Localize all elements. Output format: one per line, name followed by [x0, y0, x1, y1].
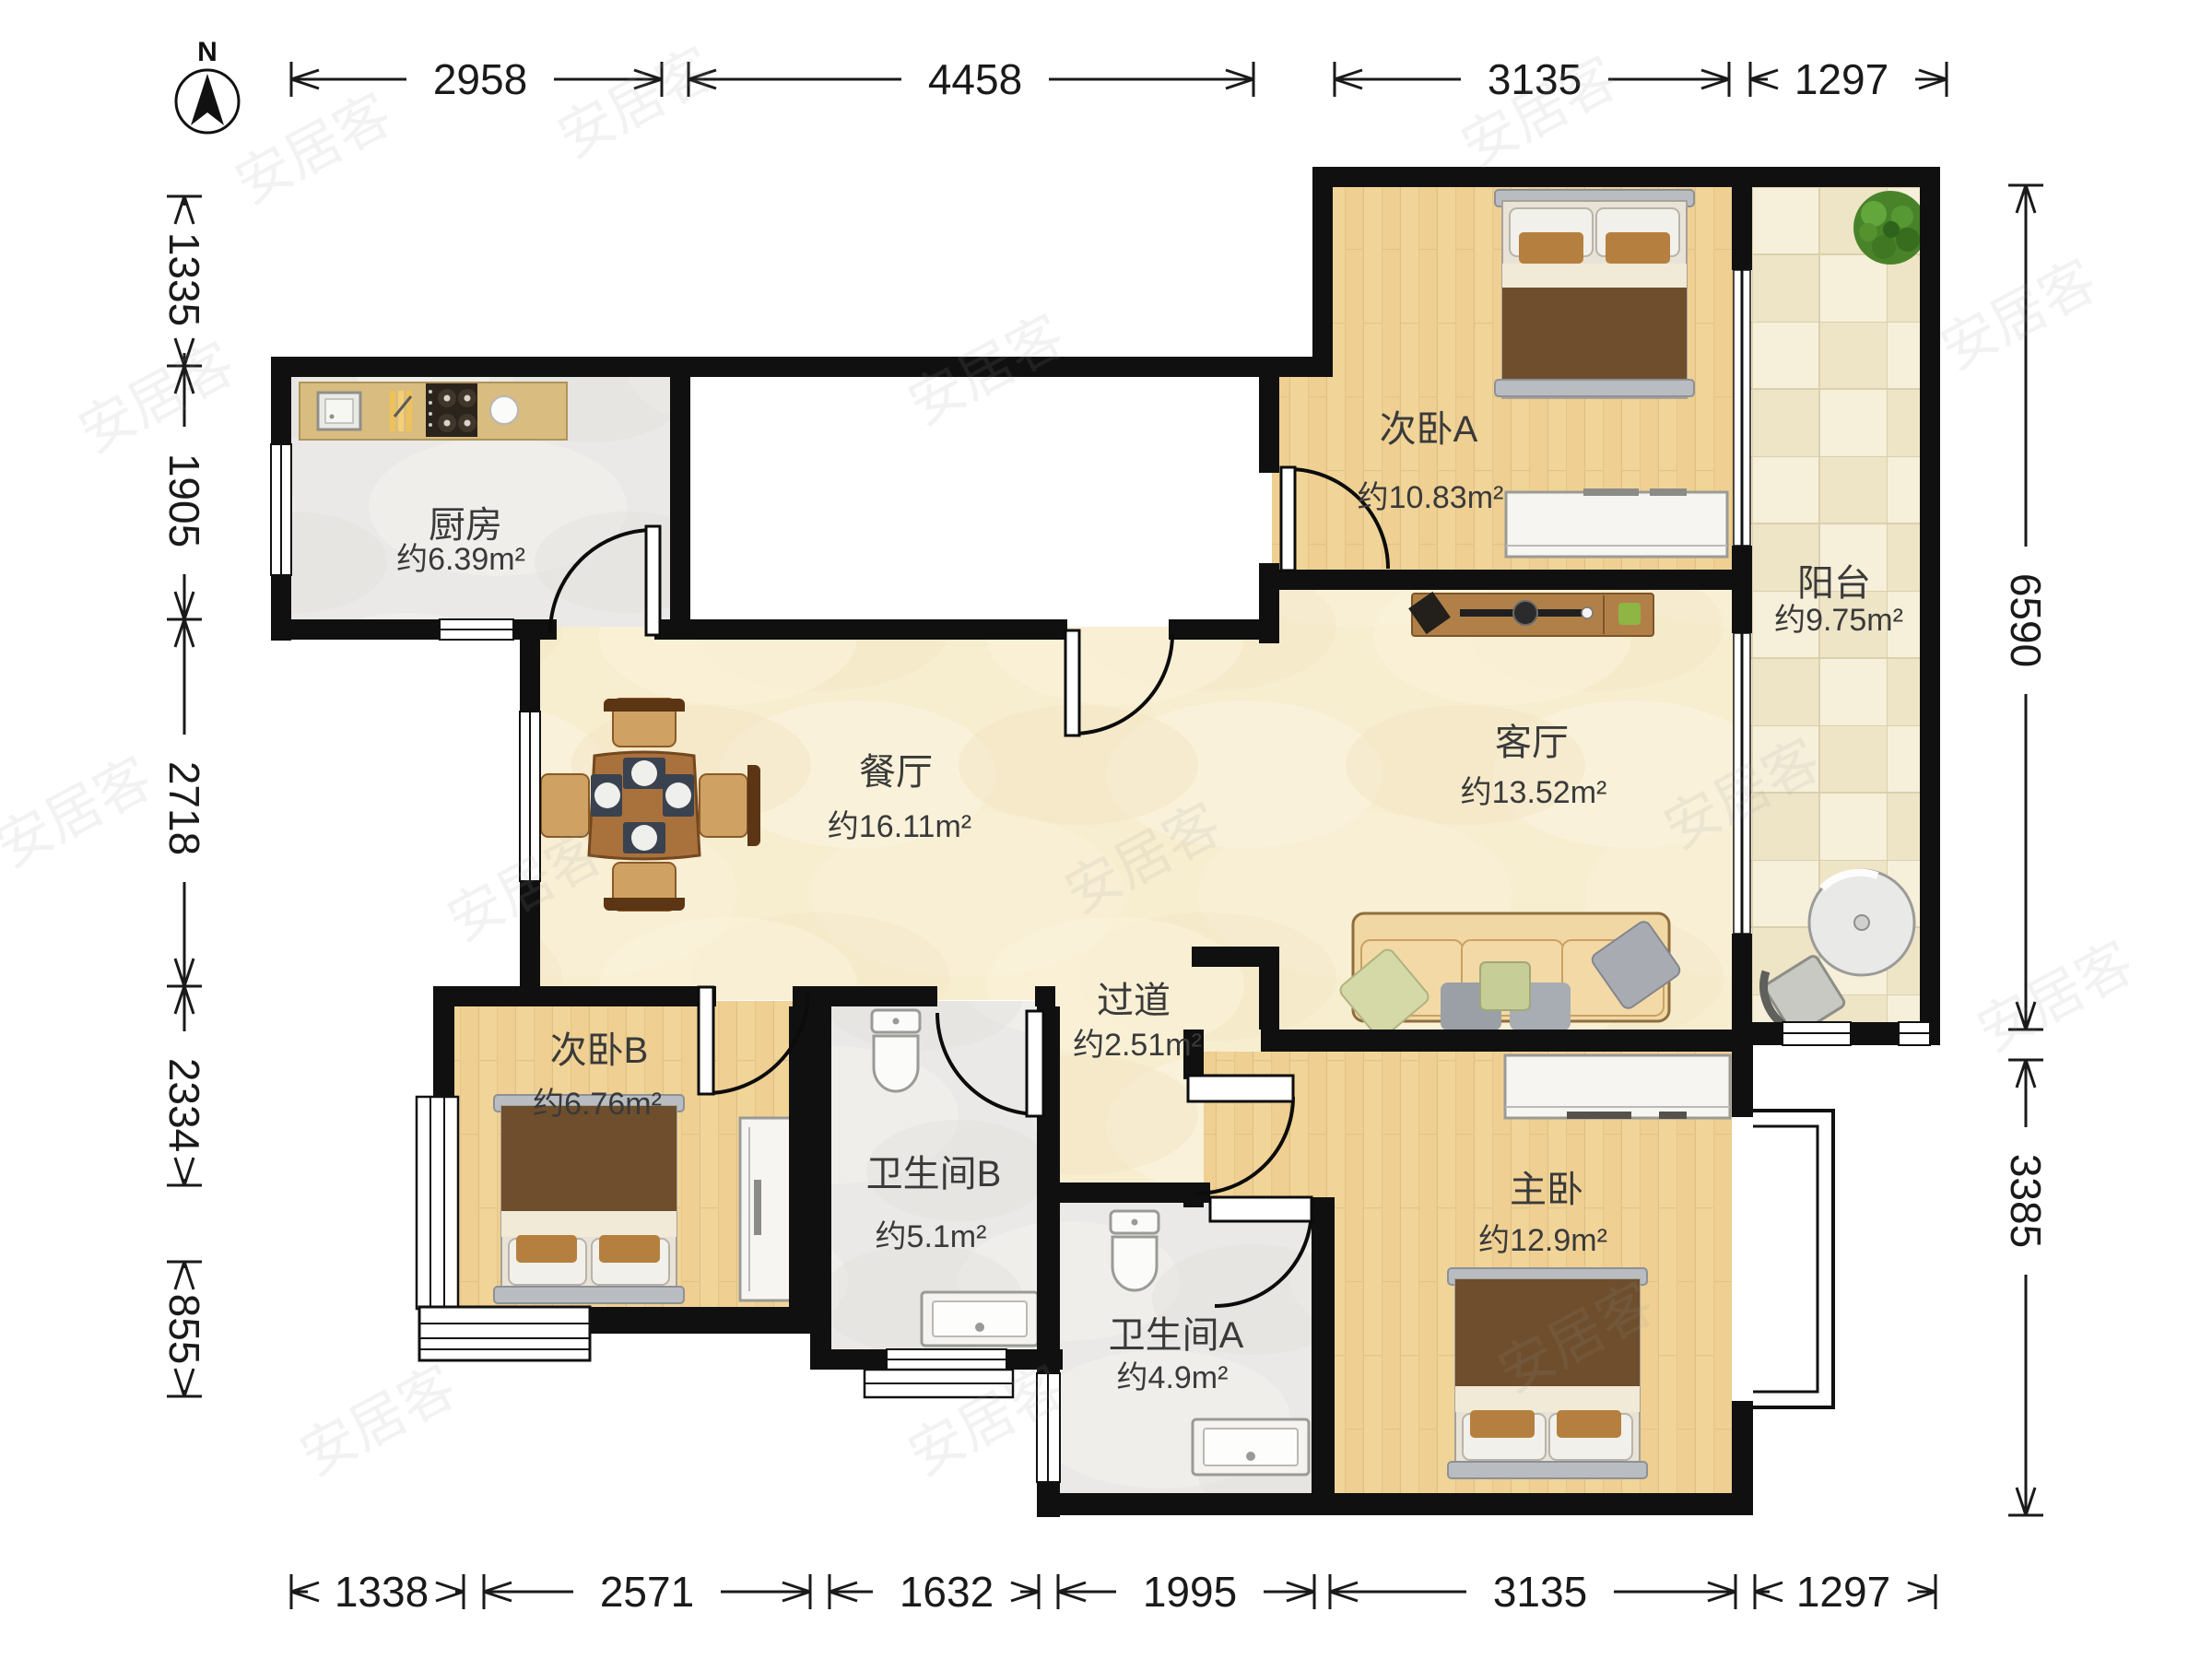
svg-text:2718: 2718 [160, 761, 208, 855]
svg-text:1995: 1995 [1143, 1568, 1237, 1616]
svg-text:1632: 1632 [900, 1568, 994, 1616]
svg-text:2958: 2958 [433, 55, 527, 103]
svg-text:约10.83m²: 约10.83m² [1358, 480, 1504, 515]
svg-text:厨房: 厨房 [429, 505, 502, 546]
svg-text:2571: 2571 [600, 1568, 694, 1616]
svg-text:1297: 1297 [1794, 55, 1888, 103]
svg-text:餐厅: 餐厅 [859, 752, 933, 793]
svg-text:约6.76m²: 约6.76m² [533, 1087, 662, 1122]
svg-text:约16.11m²: 约16.11m² [828, 809, 971, 844]
svg-text:855: 855 [160, 1294, 208, 1365]
svg-text:1297: 1297 [1796, 1568, 1890, 1616]
svg-text:卫生间A: 卫生间A [1109, 1315, 1244, 1356]
svg-text:客厅: 客厅 [1495, 723, 1569, 763]
svg-text:2334: 2334 [160, 1058, 208, 1152]
svg-text:过道: 过道 [1097, 981, 1171, 1021]
svg-text:约9.75m²: 约9.75m² [1774, 603, 1903, 638]
svg-text:1338: 1338 [335, 1568, 429, 1616]
svg-text:约4.9m²: 约4.9m² [1117, 1360, 1229, 1395]
svg-text:主卧: 主卧 [1510, 1170, 1583, 1210]
svg-text:约13.52m²: 约13.52m² [1461, 775, 1607, 810]
svg-text:4458: 4458 [928, 55, 1022, 103]
svg-text:1335: 1335 [160, 232, 208, 326]
svg-text:约6.39m²: 约6.39m² [396, 542, 525, 577]
svg-text:次卧B: 次卧B [550, 1030, 649, 1071]
svg-text:卫生间B: 卫生间B [866, 1154, 1002, 1194]
svg-text:N: N [197, 37, 218, 67]
svg-text:3135: 3135 [1493, 1568, 1587, 1616]
svg-text:6590: 6590 [2002, 573, 2050, 667]
svg-text:1905: 1905 [160, 453, 208, 547]
svg-text:约5.1m²: 约5.1m² [876, 1219, 987, 1254]
svg-text:次卧A: 次卧A [1380, 409, 1478, 450]
svg-text:3385: 3385 [2002, 1154, 2050, 1248]
svg-text:约2.51m²: 约2.51m² [1073, 1028, 1202, 1063]
svg-text:阳台: 阳台 [1797, 563, 1871, 604]
svg-text:约12.9m²: 约12.9m² [1478, 1223, 1607, 1258]
